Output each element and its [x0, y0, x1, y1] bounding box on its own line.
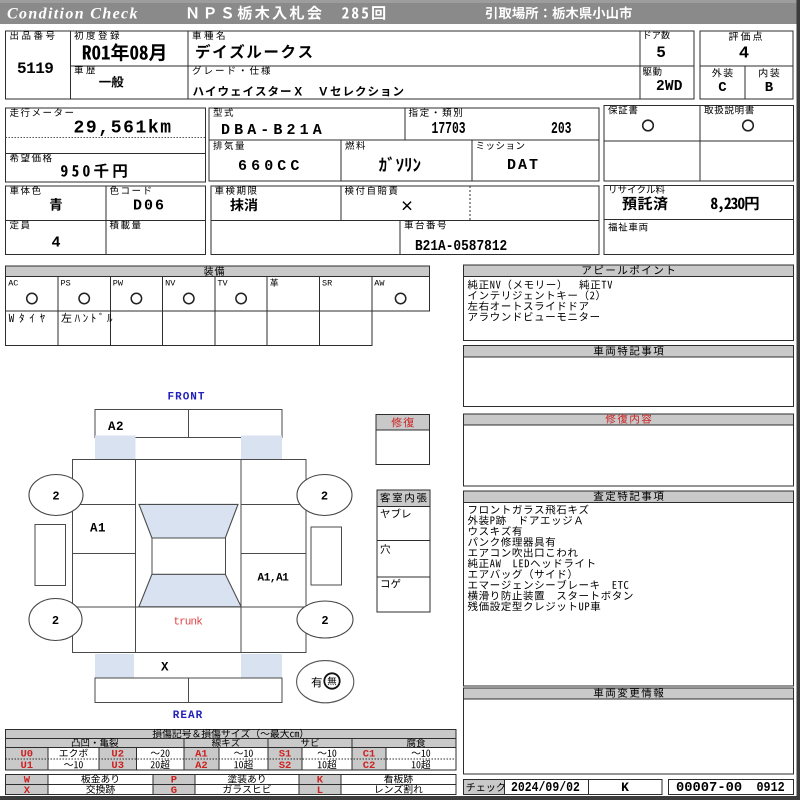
svg-text:A1: A1 — [195, 749, 208, 761]
svg-text:REAR: REAR — [173, 710, 203, 722]
svg-text:2: 2 — [52, 614, 59, 628]
svg-text:U1: U1 — [21, 760, 34, 772]
svg-text:FRONT: FRONT — [168, 392, 206, 404]
svg-text:C1: C1 — [363, 749, 376, 761]
svg-text:0912: 0912 — [757, 779, 785, 795]
svg-text:C2: C2 — [363, 760, 376, 772]
svg-text:B: B — [765, 80, 774, 96]
svg-text:U3: U3 — [111, 760, 124, 772]
svg-text:A1: A1 — [90, 522, 106, 536]
svg-text:DBA-B21A: DBA-B21A — [221, 122, 326, 139]
svg-text:17703: 17703 — [432, 120, 466, 139]
svg-text:AW: AW — [374, 279, 385, 289]
svg-text:PW: PW — [113, 279, 124, 289]
svg-text:C: C — [718, 80, 727, 96]
svg-text:S2: S2 — [279, 760, 292, 772]
svg-text:AC: AC — [8, 279, 18, 289]
svg-text:5119: 5119 — [17, 60, 53, 78]
svg-text:A2: A2 — [108, 420, 124, 434]
svg-text:4: 4 — [52, 235, 61, 252]
svg-text:4: 4 — [739, 45, 749, 64]
svg-text:2WD: 2WD — [656, 79, 683, 95]
svg-text:D06: D06 — [133, 198, 166, 215]
svg-text:U2: U2 — [111, 749, 124, 761]
svg-text:G: G — [171, 785, 177, 797]
svg-text:5: 5 — [656, 44, 666, 62]
svg-text:U0: U0 — [21, 749, 34, 761]
svg-text:K: K — [621, 780, 629, 795]
svg-text:A1,A1: A1,A1 — [258, 573, 290, 585]
svg-text:A2: A2 — [195, 760, 208, 772]
svg-text:TV: TV — [217, 279, 228, 289]
svg-text:X: X — [161, 661, 169, 675]
svg-text:S1: S1 — [279, 749, 292, 761]
svg-text:SR: SR — [322, 279, 332, 289]
svg-text:2: 2 — [321, 490, 328, 504]
svg-text:203: 203 — [551, 120, 571, 139]
svg-text:Condition Check: Condition Check — [7, 6, 139, 23]
svg-text:trunk: trunk — [173, 617, 203, 629]
svg-text:NV: NV — [165, 279, 176, 289]
svg-text:2: 2 — [321, 614, 328, 628]
svg-text:660CC: 660CC — [238, 158, 304, 175]
svg-text:PS: PS — [61, 279, 71, 289]
svg-text:DAT: DAT — [507, 157, 540, 174]
svg-text:X: X — [24, 785, 31, 797]
svg-text:L: L — [317, 785, 323, 797]
svg-text:2: 2 — [52, 490, 59, 504]
svg-text:29,561km: 29,561km — [74, 119, 173, 139]
svg-text:B21A-0587812: B21A-0587812 — [415, 238, 507, 255]
svg-text:2024/09/02: 2024/09/02 — [511, 779, 580, 795]
svg-text:00007-00: 00007-00 — [676, 780, 742, 796]
